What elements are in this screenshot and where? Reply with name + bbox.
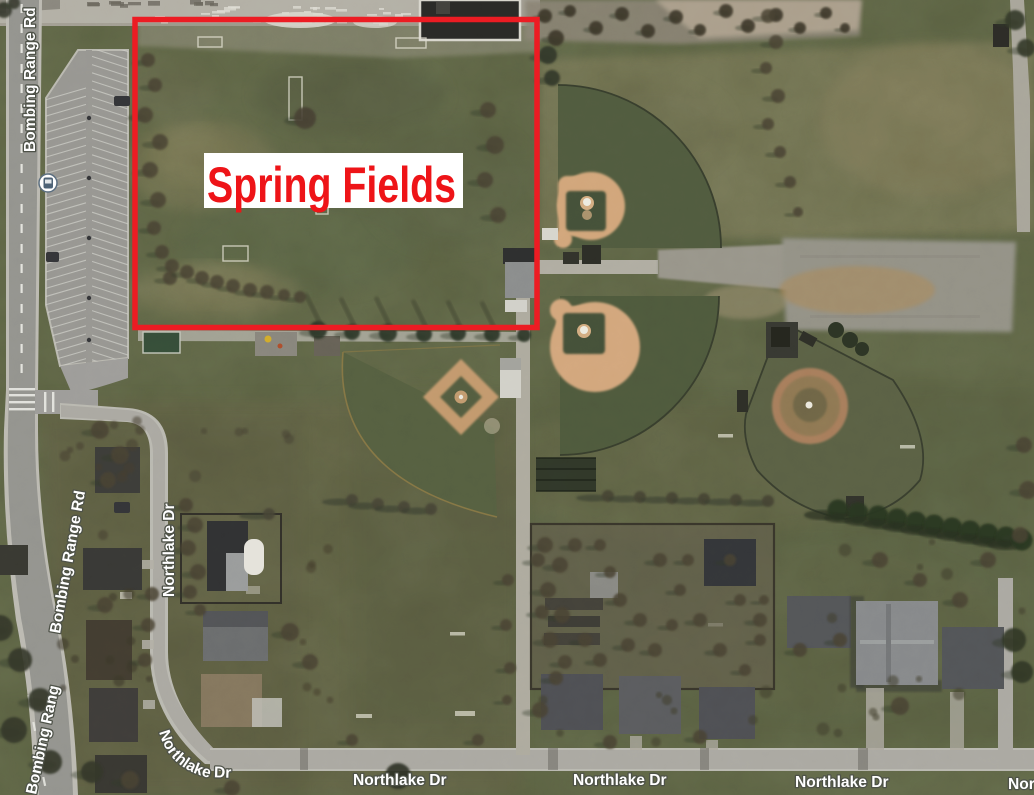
svg-text:Northlake Dr: Northlake Dr	[795, 774, 889, 791]
svg-text:Northlake Dr: Northlake Dr	[573, 772, 667, 789]
svg-text:Nor: Nor	[1008, 776, 1034, 793]
svg-text:Northlake Dr: Northlake Dr	[353, 772, 447, 789]
svg-text:Northlake Dr: Northlake Dr	[161, 503, 178, 597]
svg-text:Spring Fields: Spring Fields	[207, 157, 456, 213]
svg-text:Bombing Range Rd: Bombing Range Rd	[22, 7, 39, 152]
